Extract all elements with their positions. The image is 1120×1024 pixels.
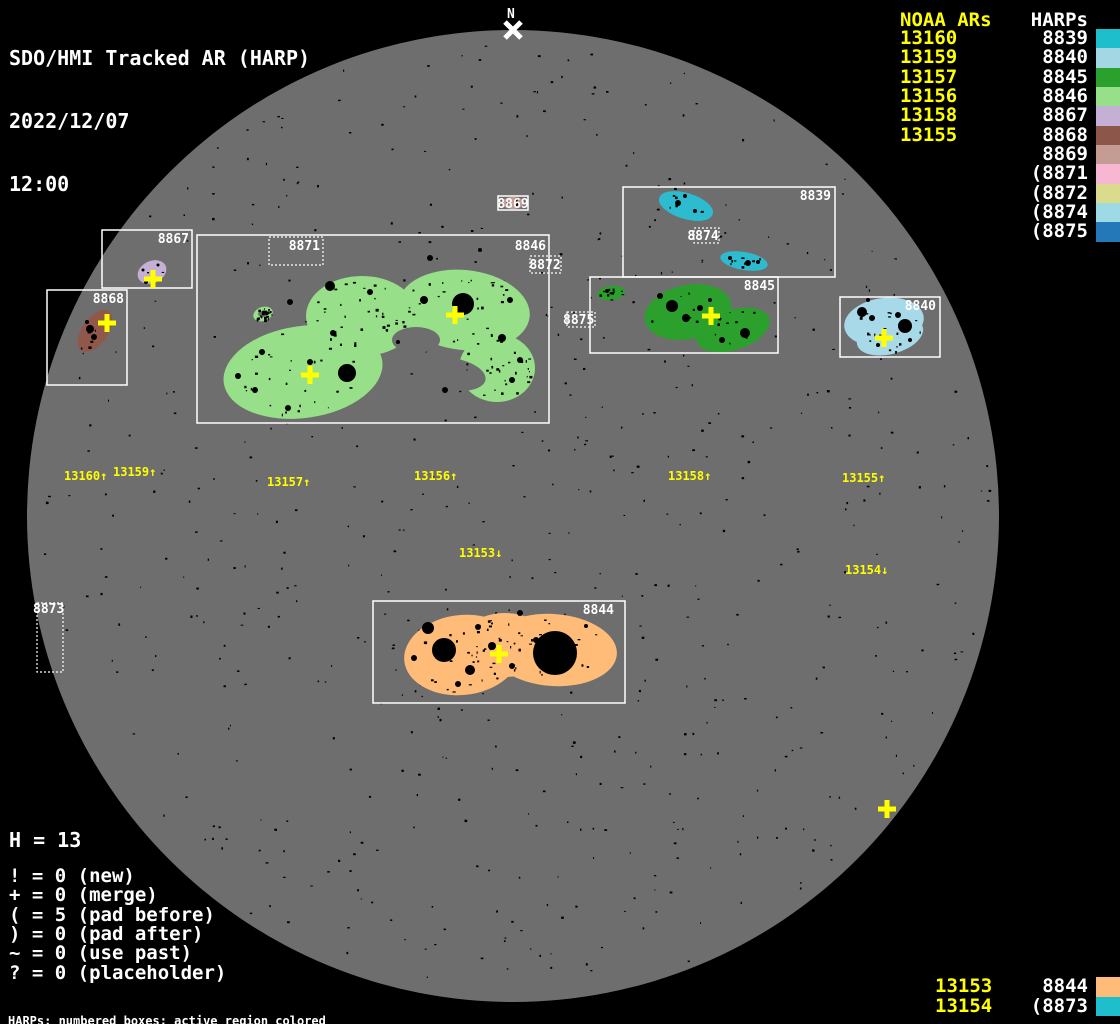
plot-time: 12:00	[9, 174, 310, 195]
harp-color-swatch	[1096, 126, 1120, 145]
harp-legend-list-south: 13153884413154(8873	[935, 977, 1120, 1016]
harp-box-8872: 8872	[529, 256, 561, 273]
harp-box-8875: 8875	[563, 312, 595, 328]
noaa-ar-number	[900, 145, 960, 164]
harp-number: 8844	[1002, 977, 1088, 997]
harp-color-swatch	[1096, 29, 1120, 48]
harp-box-label-8844: 8844	[583, 603, 614, 618]
noaa-label: 13157↑	[267, 475, 310, 489]
noaa-ar-number: 13159	[900, 48, 960, 67]
noaa-label: 13156↑	[414, 469, 457, 483]
noaa-label: 13153↓	[459, 546, 502, 560]
noaa-ar-number: 13158	[900, 106, 960, 125]
harp-number: 8840	[968, 48, 1088, 67]
noaa-label: 13154↓	[845, 563, 888, 577]
noaa-ar-number: 13153	[935, 977, 994, 997]
noaa-ar-number	[900, 203, 960, 222]
harp-box-label-8875: 8875	[563, 313, 594, 328]
harp-number: (8873	[1002, 997, 1088, 1017]
harp-box-label-8839: 8839	[800, 189, 831, 204]
noaa-label: 13158↑	[668, 469, 711, 483]
harp-box-label-8845: 8845	[744, 279, 775, 294]
harp-box-8869: 8869	[497, 196, 528, 212]
harp-legend-row: 131588867	[900, 106, 1120, 125]
harp-number: (8871	[968, 164, 1088, 183]
noaa-ar-number: 13155	[900, 126, 960, 145]
noaa-label: 13155↑	[842, 471, 885, 485]
harp-color-swatch	[1096, 222, 1120, 241]
footnote-harps: HARPs: numbered boxes; active region col…	[8, 1015, 427, 1024]
noaa-ar-number	[900, 164, 960, 183]
stats-legend: ! = 0 (new)+ = 0 (merge)( = 5 (pad befor…	[9, 867, 226, 983]
harp-box-label-8868: 8868	[93, 292, 124, 307]
harp-color-swatch	[1096, 68, 1120, 87]
harp-map-stage: 8839884088448845884688678868886988718872…	[0, 0, 1120, 1024]
noaa-ar-number: 13154	[935, 997, 994, 1017]
harp-box-label-8874: 8874	[687, 229, 718, 244]
noaa-label: 13159↑	[113, 465, 156, 479]
harp-legend-row: 131598840	[900, 48, 1120, 67]
noaa-label: 13160↑	[64, 469, 107, 483]
stats-line: ~ = 0 (use past)	[9, 944, 226, 963]
harp-box-label-8869: 8869	[497, 197, 528, 212]
harp-color-swatch	[1096, 184, 1120, 203]
harp-box-8874: 8874	[687, 228, 719, 244]
harp-color-swatch	[1096, 145, 1120, 164]
harp-legend-row: (8871	[900, 164, 1120, 183]
stats-line: ? = 0 (placeholder)	[9, 964, 226, 983]
noaa-ar-number	[900, 184, 960, 203]
harp-count: H = 13	[9, 830, 81, 850]
harp-color-swatch	[1096, 977, 1120, 997]
footnotes: HARPs: numbered boxes; active region col…	[8, 991, 427, 1024]
noaa-ar-number	[900, 222, 960, 241]
north-marker: N	[505, 7, 521, 38]
harp-legend-row: (8875	[900, 222, 1120, 241]
harp-box-label-8872: 8872	[529, 258, 560, 273]
harp-color-swatch	[1096, 106, 1120, 125]
harp-color-swatch	[1096, 997, 1120, 1017]
harp-legend-list: 1316088391315988401315788451315688461315…	[900, 29, 1120, 242]
harp-color-swatch	[1096, 87, 1120, 106]
stats-line: + = 0 (merge)	[9, 886, 226, 905]
plot-title: SDO/HMI Tracked AR (HARP)	[9, 48, 310, 69]
harp-box-label-8840: 8840	[905, 299, 936, 314]
harp-box-label-8873: 8873	[33, 602, 64, 617]
harp-number: (8875	[968, 222, 1088, 241]
plot-date: 2022/12/07	[9, 111, 310, 132]
north-label: N	[507, 7, 515, 22]
title-block: SDO/HMI Tracked AR (HARP) 2022/12/07 12:…	[9, 6, 310, 237]
harp-color-swatch	[1096, 164, 1120, 183]
harp-color-swatch	[1096, 48, 1120, 67]
harp-color-swatch	[1096, 203, 1120, 222]
harp-legend-row: 131538844	[935, 977, 1120, 997]
harp-number: 8867	[968, 106, 1088, 125]
harp-box-label-8871: 8871	[289, 239, 320, 254]
harp-legend-row: 13154(8873	[935, 997, 1120, 1017]
harp-box-label-8846: 8846	[515, 239, 546, 254]
